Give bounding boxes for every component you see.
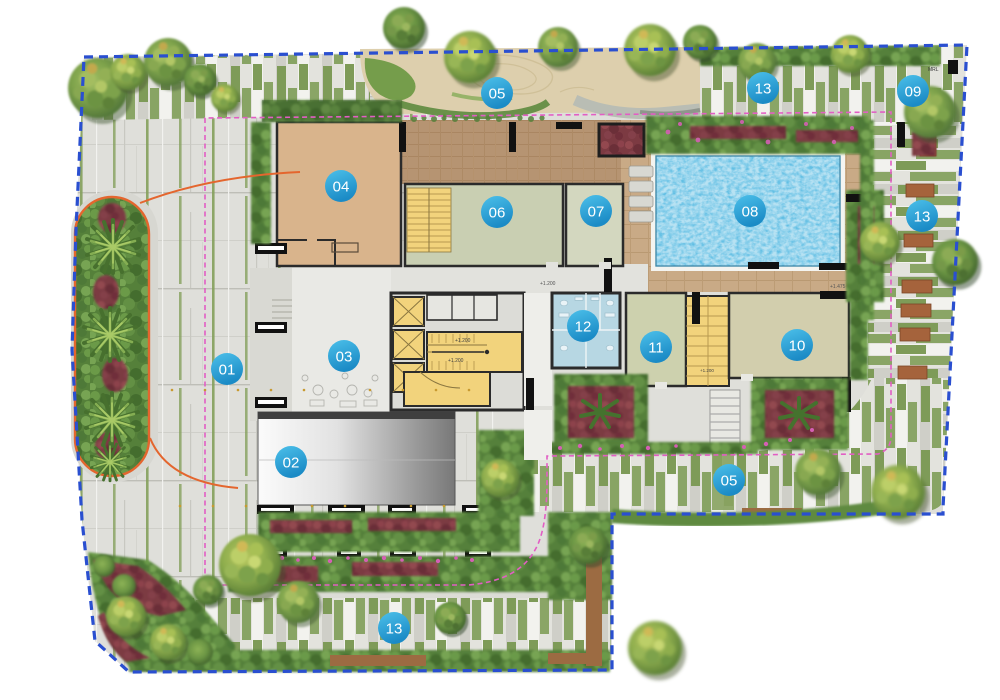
svg-text:MRL: MRL [928,67,939,73]
svg-text:05: 05 [721,473,738,490]
svg-text:+1.200: +1.200 [540,281,556,287]
svg-text:03: 03 [336,349,353,366]
svg-text:13: 13 [386,621,403,638]
svg-text:+1.200: +1.200 [448,358,464,364]
svg-text:12: 12 [575,319,592,336]
svg-text:07: 07 [588,204,605,221]
svg-text:05: 05 [489,86,506,103]
svg-text:11: 11 [648,340,664,357]
svg-text:13: 13 [755,81,772,98]
svg-text:+1.200: +1.200 [455,338,471,344]
svg-text:02: 02 [283,455,300,472]
svg-text:08: 08 [742,204,759,221]
svg-text:10: 10 [789,338,806,355]
svg-text:+1.200: +1.200 [700,368,714,373]
svg-text:06: 06 [489,205,506,222]
svg-text:01: 01 [219,362,236,379]
svg-text:+1.475: +1.475 [830,284,846,290]
svg-text:04: 04 [333,179,350,196]
svg-text:13: 13 [914,209,931,226]
svg-text:09: 09 [905,84,922,101]
